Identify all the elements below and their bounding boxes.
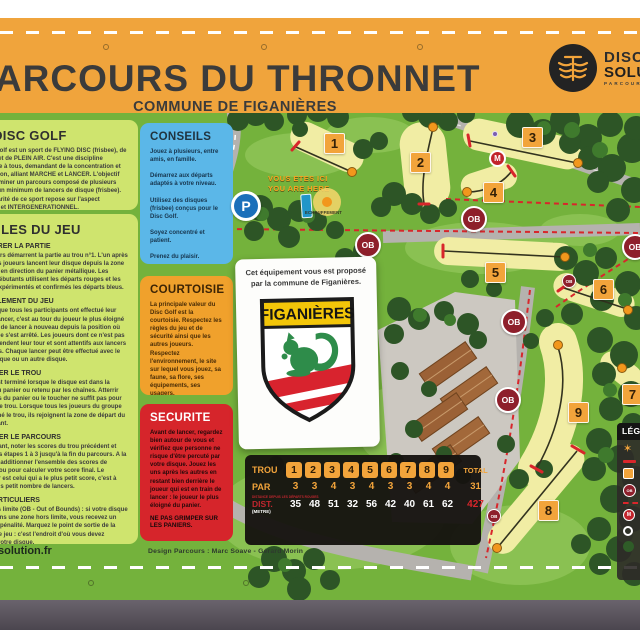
brand-name-top: DISC: [604, 50, 640, 65]
panel-conseils-title: CONSEILS: [150, 131, 223, 143]
panel-disc-golf-body: Le Disc Golf est un sport de FLYING DISC…: [0, 147, 128, 210]
scorecard-grid: TROU 1 2 3 4 5 6 7 8 9 TOTAL PAR 3 3 4 3…: [252, 462, 476, 514]
dist-value: 48: [305, 499, 324, 510]
par-value: 3: [343, 481, 362, 492]
hole-sign-6: 6: [593, 279, 614, 300]
mandatory-dot: [492, 131, 498, 137]
dashed-border-top: [0, 31, 640, 34]
hole-sign-2: 2: [410, 152, 431, 173]
warmup-label: ECHAUFFEMENT: [305, 210, 355, 215]
dist-value: 35: [286, 499, 305, 510]
par-value: 4: [362, 481, 381, 492]
ob-boundary-icon: [623, 502, 638, 504]
brand-name-bottom: SOLUTION: [604, 65, 640, 80]
hole-number: 1: [286, 462, 302, 478]
warmup-dot: [322, 197, 332, 207]
panel-rules-title: RÈGLES DU JEU: [0, 222, 128, 237]
hole-number: 6: [381, 462, 397, 478]
mandatory-badge: M: [489, 150, 506, 167]
bolt: [417, 44, 423, 50]
tree-icon: [623, 541, 634, 552]
rules-section-title: CAS PARTICULIERS: [0, 497, 128, 504]
hole-sign-4: 4: [483, 182, 504, 203]
dashed-border-bottom: [0, 566, 640, 569]
dist-unit: (METRE): [252, 509, 286, 514]
website-url: discsolution.fr: [0, 545, 52, 557]
bolt: [103, 44, 109, 50]
brand-logo: DISC SOLUTION PARCOURS: [549, 44, 640, 92]
panel-courtoisie: COURTOISIE La principale valeur du Disc …: [140, 276, 233, 395]
rules-section-title: TERMINER LE PARCOURS: [0, 434, 128, 441]
panel-securite-warning: NE PAS GRIMPER SUR LES PANIERS.: [150, 515, 223, 529]
panel-securite-body: Avant de lancer, regardez bien autour de…: [150, 429, 223, 510]
par-value: 3: [381, 481, 400, 492]
bolt: [243, 580, 249, 586]
basket-icon: ✶: [623, 444, 640, 455]
hole-sign-8: 8: [538, 500, 559, 521]
rules-section-body: En avançant, noter les scores du trou pr…: [0, 443, 128, 492]
hole-sign-icon: [623, 468, 634, 479]
legend-panel: LÉGENDE ✶ OB M: [617, 423, 640, 580]
legend-title: LÉGENDE: [617, 423, 640, 440]
dist-value: 51: [324, 499, 343, 510]
page-subtitle: COMMUNE DE FIGANIÈRES: [0, 99, 470, 115]
parking-letter: P: [234, 194, 258, 218]
hole-sign-3: 3: [522, 127, 543, 148]
figanieres-coat-of-arms: FIGANIÈRES: [256, 295, 359, 425]
scorecard-total-label: TOTAL: [457, 466, 494, 475]
shield-title: FIGANIÈRES: [259, 305, 354, 324]
rules-section-body: Zone hors limite (OB - Out of Bounds) : …: [0, 506, 128, 544]
panel-securite: SECURITE Avant de lancer, regardez bien …: [140, 404, 233, 541]
panel-courtoisie-body: La principale valeur du Disc Golf est la…: [150, 301, 223, 395]
par-value: 3: [305, 481, 324, 492]
panel-courtoisie-title: COURTOISIE: [150, 284, 223, 296]
bolt: [261, 44, 267, 50]
rules-section-body: Le trou est terminé lorsque le disque es…: [0, 379, 128, 428]
brand-logo-text: DISC SOLUTION PARCOURS: [604, 50, 640, 87]
dist-value: 56: [362, 499, 381, 510]
rules-section-title: DÉROULEMENT DU JEU: [0, 298, 128, 305]
hole-sign-1: 1: [324, 133, 345, 154]
par-value: 4: [324, 481, 343, 492]
panel-conseils: CONSEILS Jouez à plusieurs, entre amis, …: [140, 123, 233, 264]
tee-line-icon: [623, 460, 636, 463]
bolt: [88, 580, 94, 586]
design-credits: Design Parcours : Marc Soave - Gérard Mo…: [148, 548, 303, 555]
par-total: 31: [457, 481, 494, 492]
parking-icon: P: [231, 191, 261, 221]
rules-section-body: Une fois que tous les participants ont e…: [0, 307, 128, 364]
scorecard-row-par-label: PAR: [252, 482, 286, 492]
dist-value: 62: [438, 499, 457, 510]
scorecard-row-dist-label: DIST.: [252, 500, 286, 509]
dist-value: 40: [400, 499, 419, 510]
mandatory-icon: M: [623, 509, 635, 521]
commune-card: Cet équipement vous est proposé par la c…: [235, 257, 380, 450]
par-value: 3: [286, 481, 305, 492]
dist-value: 32: [343, 499, 362, 510]
dist-value: 42: [381, 499, 400, 510]
ob-icon: OB: [623, 484, 636, 497]
hole-number: 2: [305, 462, 321, 478]
scorecard-row-hole-label: TROU: [252, 465, 286, 475]
rules-section-title: DÉMARRER LA PARTIE: [0, 243, 128, 250]
hole-number: 4: [343, 462, 359, 478]
hole-number: 3: [324, 462, 340, 478]
sign-photo: PARCOURS DU THRONNET COMMUNE DE FIGANIÈR…: [0, 0, 640, 640]
dist-total: 427: [457, 499, 494, 510]
panel-rules: RÈGLES DU JEU DÉMARRER LA PARTIE Les jou…: [0, 214, 138, 544]
rules-section-title: TERMINER LE TROU: [0, 370, 128, 377]
hole-sign-5: 5: [485, 262, 506, 283]
ob-badge-small: OB: [562, 274, 576, 288]
disc-golf-basket-icon: [549, 44, 597, 92]
hole-number: 9: [438, 462, 454, 478]
ob-badge-small: OB: [487, 509, 501, 523]
legend-items: ✶ OB M: [617, 440, 640, 552]
panel-conseils-body: Jouez à plusieurs, entre amis, en famill…: [150, 148, 223, 261]
hole-sign-9: 9: [568, 402, 589, 423]
ob-badge: OB: [495, 387, 521, 413]
ob-badge: OB: [501, 309, 527, 335]
panel-disc-golf: LE DISC GOLF Le Disc Golf est un sport d…: [0, 120, 138, 210]
hole-number: 5: [362, 462, 378, 478]
ob-badge: OB: [461, 206, 487, 232]
panel-securite-title: SECURITE: [150, 412, 223, 424]
hole-sign-7: 7: [622, 384, 640, 405]
dist-value: 61: [419, 499, 438, 510]
commune-card-text: Cet équipement vous est proposé par la c…: [243, 266, 368, 290]
page-title: PARCOURS DU THRONNET: [0, 58, 481, 100]
brand-tagline: PARCOURS: [604, 82, 640, 87]
par-value: 4: [438, 481, 457, 492]
sign-frame-bottom: [0, 600, 640, 630]
panel-disc-golf-title: LE DISC GOLF: [0, 128, 128, 143]
par-value: 3: [400, 481, 419, 492]
rules-section-body: Les joueurs démarrent la partie au trou …: [0, 252, 128, 292]
scorecard: TROU 1 2 3 4 5 6 7 8 9 TOTAL PAR 3 3 4 3…: [245, 455, 481, 545]
hole-number: 8: [419, 462, 435, 478]
scorecard-dist-label-block: DISTANCE DEPUIS LES DÉPARTS ROUGES DIST.…: [252, 495, 286, 514]
par-value: 4: [419, 481, 438, 492]
ob-badge: OB: [355, 232, 381, 258]
putt-zone-icon: [623, 526, 633, 536]
hole-number: 7: [400, 462, 416, 478]
